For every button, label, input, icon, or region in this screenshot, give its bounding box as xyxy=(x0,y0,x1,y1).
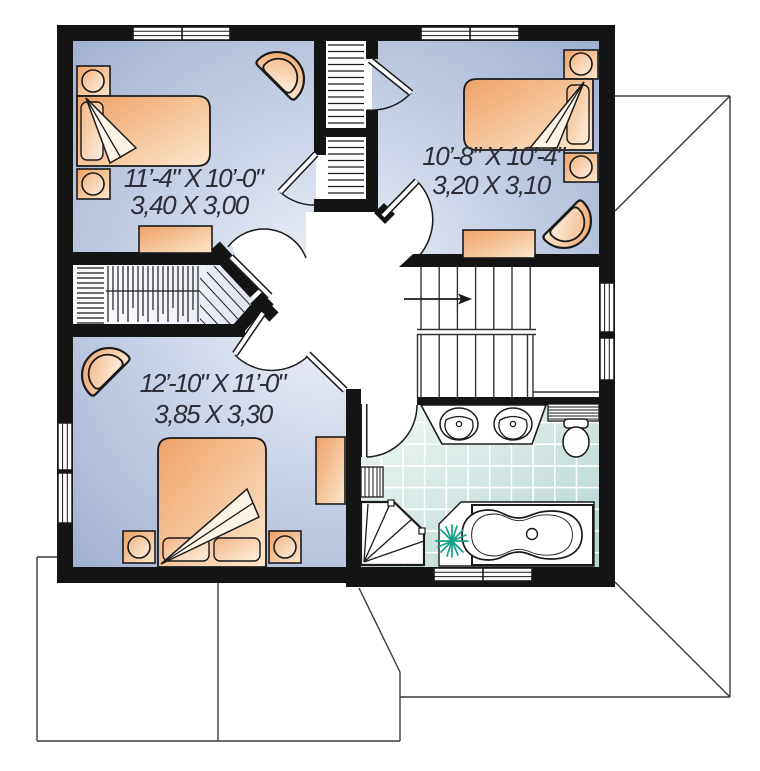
svg-text:3,40 X 3,00: 3,40 X 3,00 xyxy=(130,190,250,220)
svg-text:3,85 X 3,30: 3,85 X 3,30 xyxy=(154,399,274,429)
svg-text:11’-4" X 10’-0": 11’-4" X 10’-0" xyxy=(124,163,266,193)
svg-text:3,20 X 3,10: 3,20 X 3,10 xyxy=(432,170,552,200)
svg-text:10’-8" X 10’-4": 10’-8" X 10’-4" xyxy=(422,141,567,171)
svg-text:12’-10" X 11’-0": 12’-10" X 11’-0" xyxy=(140,368,289,398)
